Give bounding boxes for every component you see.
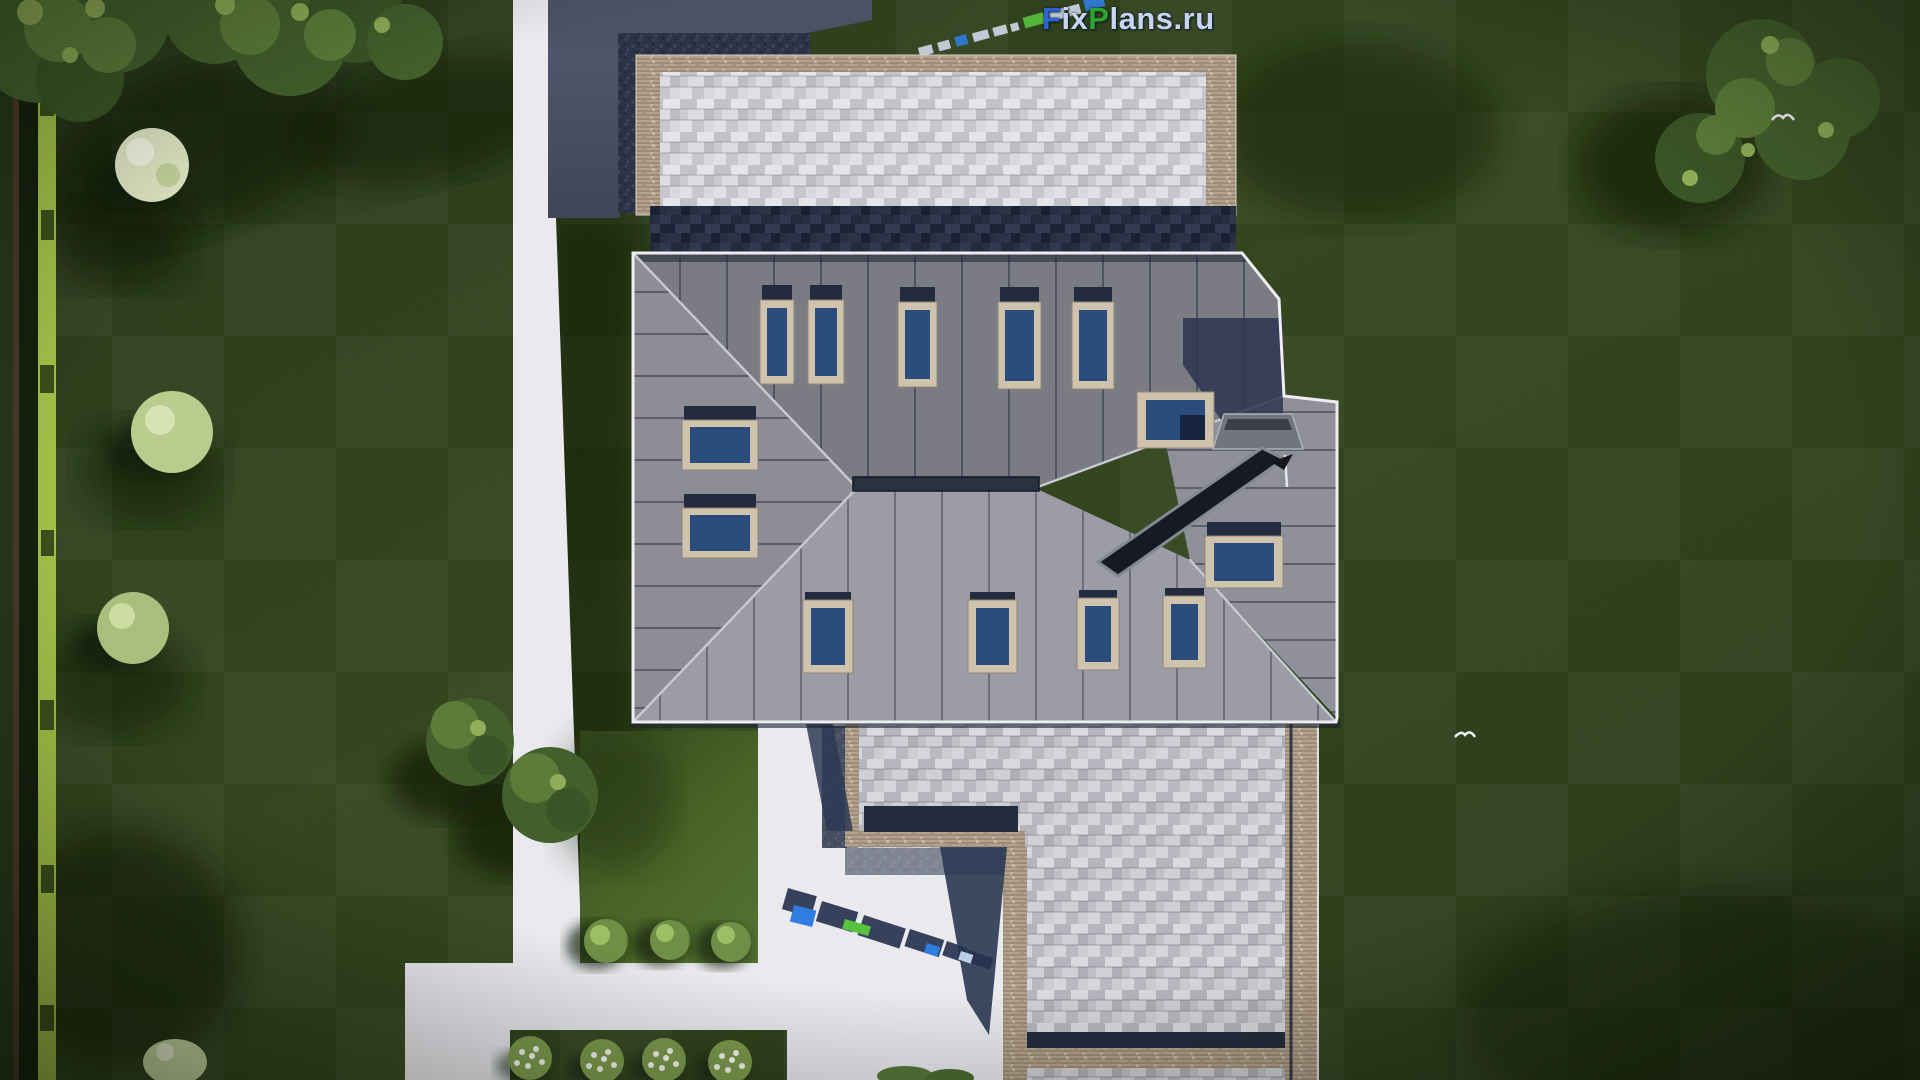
brand-logo-part: P [1088, 1, 1109, 36]
site-plan-render: FixPlans.ru [0, 0, 1920, 1080]
brand-logo-part: ix [1061, 1, 1088, 36]
main-roof [630, 253, 1340, 728]
garage-north-wall-shadow [650, 206, 1236, 253]
brand-logo-part: lans.ru [1109, 1, 1214, 36]
chimney [1213, 414, 1303, 449]
brand-logo-part: F [1042, 1, 1061, 36]
inner-lawn-bushes [566, 919, 751, 969]
scene-canvas [0, 0, 1920, 1080]
patio-notch-shadow [864, 806, 1018, 832]
boundary-hedge [0, 0, 56, 1080]
ridge-glazing [853, 477, 1039, 491]
garage-roof [636, 55, 1236, 253]
brand-logo: FixPlans.ru [1042, 1, 1215, 37]
